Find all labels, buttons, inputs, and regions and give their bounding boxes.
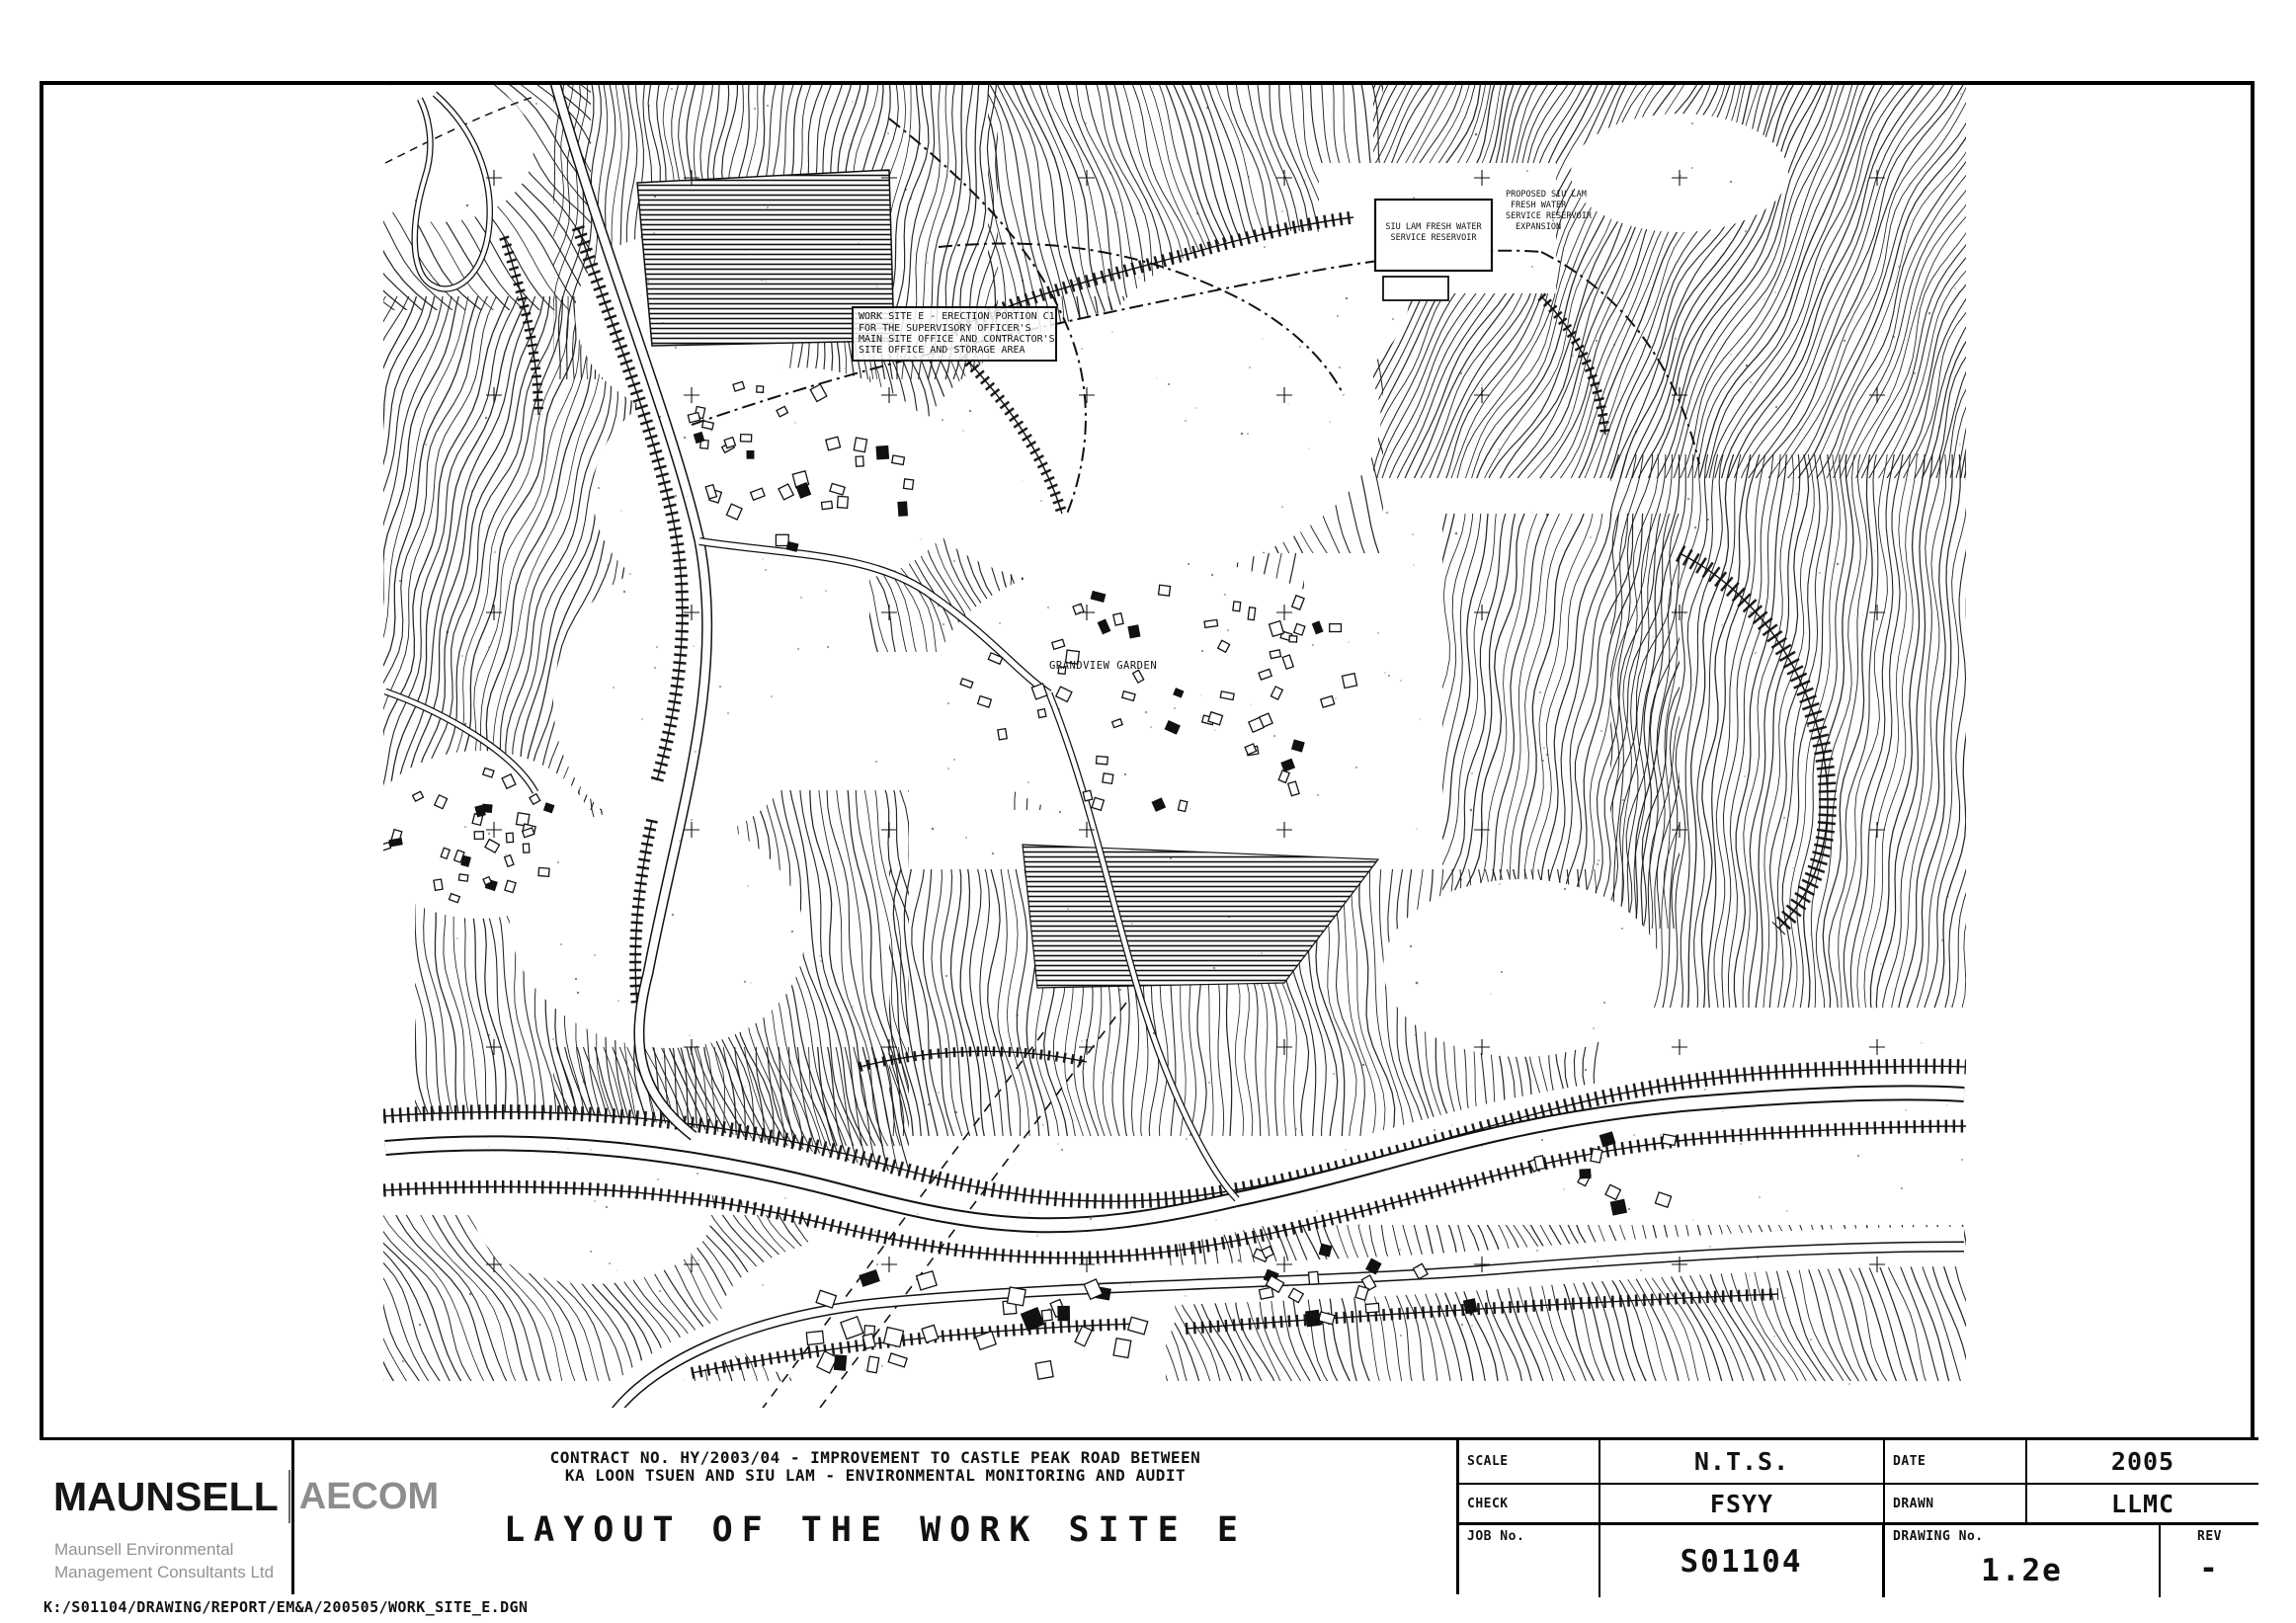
scale-label: SCALE: [1467, 1454, 1509, 1469]
title-block: MAUNSELL AECOM Maunsell Environmental Ma…: [40, 1437, 2258, 1594]
date-label: DATE: [1893, 1454, 1926, 1469]
drawn-value: LLMC: [2111, 1490, 2174, 1518]
drawing-no-value: 1.2e: [1981, 1553, 2063, 1588]
contract-line1: CONTRACT NO. HY/2003/04 - IMPROVEMENT TO…: [294, 1449, 1456, 1467]
logo-divider: [288, 1470, 290, 1523]
date-value: 2005: [2111, 1447, 2174, 1476]
maunsell-logo: MAUNSELL: [53, 1474, 279, 1520]
contract-line2: KA LOON TSUEN AND SIU LAM - ENVIRONMENTA…: [294, 1467, 1456, 1485]
title-block-fields: SCALE N.T.S. DATE 2005 CHECK FSYY DRAWN …: [1459, 1440, 2258, 1594]
file-path: K:/S01104/DRAWING/REPORT/EM&A/200505/WOR…: [43, 1598, 528, 1616]
logo-subtitle-line2: Management Consultants Ltd: [54, 1562, 274, 1584]
contract-title-cell: CONTRACT NO. HY/2003/04 - IMPROVEMENT TO…: [294, 1440, 1459, 1594]
drawing-title: LAYOUT OF THE WORK SITE E: [294, 1510, 1456, 1550]
rev-value: -: [2199, 1551, 2220, 1586]
drawing-sheet: WORK SITE E - ERECTION PORTION C1 FOR TH…: [0, 0, 2296, 1623]
check-label: CHECK: [1467, 1497, 1509, 1511]
scale-value: N.T.S.: [1694, 1447, 1789, 1476]
logo-subtitle-line1: Maunsell Environmental: [54, 1539, 274, 1562]
job-no-label: JOB No.: [1467, 1529, 1524, 1544]
drawing-no-label: DRAWING No.: [1893, 1529, 1984, 1544]
logo-cell: MAUNSELL AECOM Maunsell Environmental Ma…: [40, 1440, 294, 1594]
drawn-label: DRAWN: [1893, 1497, 1934, 1511]
rev-label: REV: [2197, 1529, 2222, 1544]
page-border: [40, 81, 2255, 1594]
check-value: FSYY: [1710, 1490, 1773, 1518]
job-no-value: S01104: [1681, 1544, 1803, 1580]
